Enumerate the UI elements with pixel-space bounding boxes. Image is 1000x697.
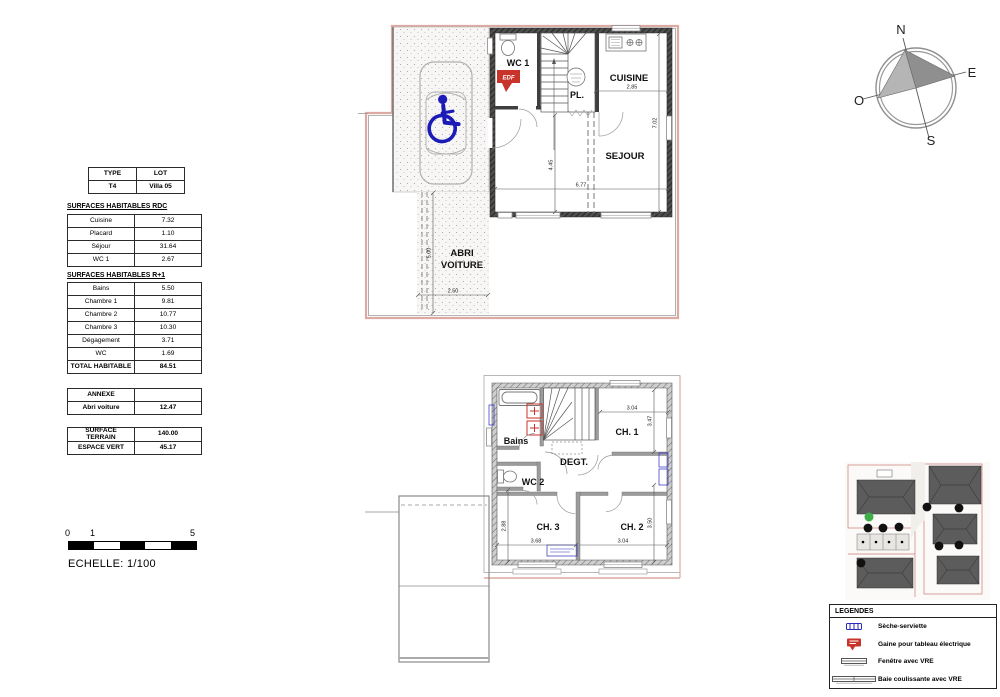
rdc-floor-plan: EDF 2.85 7.02 4.45 6.77 xyxy=(358,0,698,330)
lot-lot-value: Villa 05 xyxy=(137,181,185,194)
row-label: Chambre 3 xyxy=(68,322,135,335)
ceiling-height-stamp xyxy=(567,68,585,86)
legend-item: Sèche-serviette xyxy=(830,618,996,636)
row-value: 2.67 xyxy=(135,254,202,267)
rdc-door-swings xyxy=(493,109,624,148)
wc2-toilet xyxy=(498,470,517,483)
legend-label: Fenêtre avec VRE xyxy=(878,658,934,665)
floorplan-sheet: TYPE LOT T4 Villa 05 SURFACES HABITABLES… xyxy=(0,0,1000,697)
dim-abri-height: 5.00 xyxy=(427,248,433,259)
compass-o: O xyxy=(854,93,864,108)
bathtub xyxy=(499,390,540,406)
towel-radiator-icon xyxy=(830,623,878,630)
room-label-sejour: SEJOUR xyxy=(605,151,644,162)
annexe-label: Abri voiture xyxy=(68,402,135,415)
dim-ch1-height: 3.47 xyxy=(648,416,654,427)
edf-duct-symbol: EDF xyxy=(497,70,520,92)
r1-carport-footprint xyxy=(365,496,489,662)
compass-n: N xyxy=(896,22,905,37)
legend-item: Gaine pour tableau électrique xyxy=(830,636,996,654)
room-label-cuisine: CUISINE xyxy=(610,73,649,84)
legend-box: LEGENDES Sèche-serviette Gaine pour tabl… xyxy=(829,604,997,689)
dim-abri-width: 2.50 xyxy=(448,289,459,295)
row-label: WC 1 xyxy=(68,254,135,267)
r1-stairs xyxy=(544,388,596,454)
row-value: 1.10 xyxy=(135,228,202,241)
scale-seg xyxy=(94,542,119,549)
room-label-wc2: WC 2 xyxy=(522,477,545,487)
legend-label: Baie coulissante avec VRE xyxy=(878,676,962,683)
window-vre-icon xyxy=(830,657,878,666)
dim-sejour-width: 6.77 xyxy=(576,183,587,189)
dim-ch2-height: 3.50 xyxy=(648,518,654,529)
terrain-value: 140.00 xyxy=(135,428,202,442)
row-value: 9.81 xyxy=(135,296,202,309)
espace-vert-value: 45.17 xyxy=(135,442,202,455)
legend-title: LEGENDES xyxy=(830,605,996,618)
scale-caption: ECHELLE: 1/100 xyxy=(68,558,156,570)
sliding-bay-vre-icon xyxy=(830,675,878,684)
scale-seg xyxy=(171,542,196,549)
r1-surfaces-table: Bains5.50 Chambre 19.81 Chambre 210.77 C… xyxy=(67,282,202,374)
row-label: Cuisine xyxy=(68,215,135,228)
terrain-table: SURFACE TERRAIN140.00 ESPACE VERT45.17 xyxy=(67,427,202,455)
carport-area xyxy=(393,27,489,192)
room-label-abri-2: VOITURE xyxy=(441,260,483,271)
row-label: Chambre 1 xyxy=(68,296,135,309)
edf-label: EDF xyxy=(503,76,515,82)
green-space-marker xyxy=(865,513,874,522)
total-value: 84.51 xyxy=(135,361,202,374)
room-label-pl: PL. xyxy=(570,90,584,100)
compass-rose: N E O S xyxy=(852,8,987,148)
r1-room-labels: Bains CH. 1 DEGT. WC 2 CH. 3 CH. 2 xyxy=(504,427,644,532)
scale-tick-labels: 0 1 5 xyxy=(68,528,198,540)
row-label: Dégagement xyxy=(68,335,135,348)
row-value: 3.71 xyxy=(135,335,202,348)
rdc-stairs xyxy=(541,33,595,150)
row-value: 31.64 xyxy=(135,241,202,254)
annexe-header: ANNEXE xyxy=(68,389,135,402)
room-label-abri-1: ABRI xyxy=(450,248,473,259)
r1-surfaces-title: SURFACES HABITABLES R+1 xyxy=(67,272,165,279)
scale-seg xyxy=(120,542,145,549)
room-label-bains: Bains xyxy=(504,436,529,446)
kitchen-sink xyxy=(606,34,646,51)
row-value: 1.69 xyxy=(135,348,202,361)
scale-bar xyxy=(68,541,197,550)
annexe-table: ANNEXE Abri voiture12.47 xyxy=(67,388,202,415)
scale-tick-0: 0 xyxy=(65,528,70,538)
annexe-empty xyxy=(135,389,202,402)
compass-s: S xyxy=(927,133,936,148)
lot-table: TYPE LOT T4 Villa 05 xyxy=(88,167,185,194)
rdc-surfaces-title: SURFACES HABITABLES RDC xyxy=(67,203,167,210)
annexe-value: 12.47 xyxy=(135,402,202,415)
room-label-wc1: WC 1 xyxy=(507,58,530,68)
legend-label: Sèche-serviette xyxy=(878,623,927,630)
total-label: TOTAL HABITABLE xyxy=(68,361,135,374)
terrain-label: SURFACE TERRAIN xyxy=(68,428,135,442)
dim-cuisine-width: 2.85 xyxy=(627,85,638,91)
dim-right-height: 7.02 xyxy=(653,118,659,129)
room-label-ch2: CH. 2 xyxy=(620,522,643,532)
dim-hall-height: 4.45 xyxy=(549,160,555,171)
row-value: 7.32 xyxy=(135,215,202,228)
dim-ch3-height: 2.88 xyxy=(502,521,508,532)
row-value: 10.30 xyxy=(135,322,202,335)
row-label: Placard xyxy=(68,228,135,241)
site-car xyxy=(877,470,892,477)
legend-item: Fenêtre avec VRE xyxy=(830,653,996,671)
row-label: WC xyxy=(68,348,135,361)
scale-tick-5: 5 xyxy=(190,528,195,538)
row-value: 5.50 xyxy=(135,283,202,296)
electric-duct-icon xyxy=(830,638,878,651)
r1-door-swings xyxy=(519,434,622,514)
room-label-ch3: CH. 3 xyxy=(536,522,559,532)
towel-radiator xyxy=(527,404,542,435)
row-value: 10.77 xyxy=(135,309,202,322)
r1-floor-plan: 3.04 3.47 3.50 2.88 3.68 3.04 Bains CH. … xyxy=(365,362,690,682)
scale-tick-1: 1 xyxy=(90,528,95,538)
legend-item: Baie coulissante avec VRE xyxy=(830,671,996,689)
dim-ch2-width: 3.04 xyxy=(618,539,629,545)
espace-vert-label: ESPACE VERT xyxy=(68,442,135,455)
wc1-toilet xyxy=(500,34,516,56)
rdc-surfaces-table: Cuisine7.32 Placard1.10 Séjour31.64 WC 1… xyxy=(67,214,202,267)
scale-seg xyxy=(145,542,170,549)
rdc-open-separation xyxy=(588,112,594,213)
scale-seg xyxy=(69,542,94,549)
legend-label: Gaine pour tableau électrique xyxy=(878,641,971,648)
dim-ch3-width: 3.68 xyxy=(531,539,542,545)
room-label-ch1: CH. 1 xyxy=(615,427,638,437)
row-label: Bains xyxy=(68,283,135,296)
row-label: Chambre 2 xyxy=(68,309,135,322)
dim-ch1-width: 3.04 xyxy=(627,406,638,412)
site-plan-minimap xyxy=(845,462,990,600)
lot-header-type: TYPE xyxy=(89,168,137,181)
compass-e: E xyxy=(968,65,977,80)
row-label: Séjour xyxy=(68,241,135,254)
lot-type-value: T4 xyxy=(89,181,137,194)
lot-header-lot: LOT xyxy=(137,168,185,181)
room-label-degt: DEGT. xyxy=(560,457,588,468)
